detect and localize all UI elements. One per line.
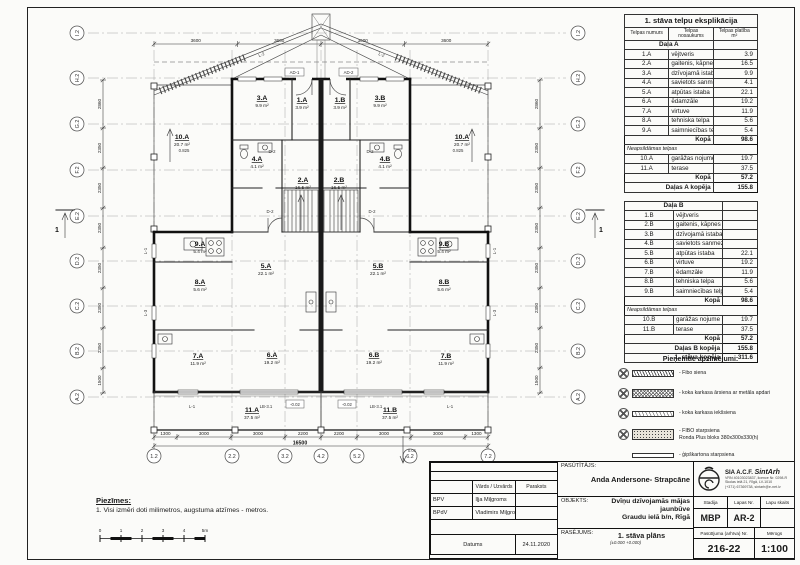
room-name: terase — [674, 325, 723, 335]
grid-bubble-label: 4.2 — [317, 454, 325, 460]
room-area: 19.2 — [713, 97, 757, 107]
table-row: 2.B gaitenis, kāpnes — [625, 220, 758, 230]
room-name: dzīvojamā istaba — [674, 230, 723, 240]
col-header-name: Telpas nosaukums — [669, 28, 713, 41]
room-area: 5.6 — [723, 277, 758, 287]
svg-text:3.9 m²: 3.9 m² — [295, 105, 309, 110]
explication-table-a: 1. stāva telpu eksplikācija Telpas numur… — [624, 14, 758, 193]
axis-circle-icon — [618, 429, 629, 440]
room-label: 3.B9.9 m² — [373, 95, 387, 108]
slope-value: 0.01 — [408, 448, 417, 453]
terrace-tag-l1: L-1 — [189, 404, 196, 409]
scale-label: Mērogs — [755, 528, 794, 539]
dimension-value: 2350 — [97, 222, 102, 233]
drawing-section: RASĒJUMS: 1. stāva plāns (±0.000 +0.000) — [558, 529, 694, 559]
svg-text:10.A: 10.A — [455, 134, 469, 141]
svg-text:16.5 m²: 16.5 m² — [295, 185, 311, 190]
lapu-label: Lapu skaits — [761, 497, 794, 509]
table-row: 8.A tehniska telpa 5.6 — [625, 116, 758, 126]
personnel-name: Iļja Miļgroms — [473, 494, 515, 507]
terrace-tag-lb31: LB-3.1 — [260, 404, 273, 409]
stadija-value: MBP — [694, 509, 728, 528]
total-b-value: 155.8 — [723, 344, 758, 354]
kopa-value: 98.6 — [713, 135, 757, 145]
kopa-label: Kopā — [625, 296, 723, 306]
dimension-value: 1300 — [471, 431, 482, 436]
table-row: 7.A virtuve 11.9 — [625, 107, 758, 117]
room-number: 5.B — [625, 249, 674, 259]
legend-label: - ģipškartona starpsiena — [679, 452, 734, 459]
room-name: virtuve — [669, 107, 713, 117]
personnel-signature — [515, 494, 557, 507]
room-name: dzīvojamā istaba — [669, 69, 713, 79]
room-label: 6.A19.2 m² — [264, 352, 280, 365]
personnel-name: Vladimirs Miļgroms — [473, 507, 515, 520]
room-area: 5.6 — [713, 116, 757, 126]
titleblock-middle: PASŪTĪTĀJS: Anda Andersone- Strapcāne OB… — [558, 462, 694, 559]
terrace-tag-lb31-r: LB-3.1 — [370, 404, 383, 409]
scale-bar: 012345m — [95, 526, 225, 546]
table-a-title: 1. stāva telpu eksplikācija — [625, 15, 758, 28]
room-name: savietots sanmezgls — [674, 239, 723, 249]
svg-text:1: 1 — [55, 227, 59, 234]
room-area: 5.4 — [723, 287, 758, 297]
grid-bubble-label: 7.2 — [484, 454, 492, 460]
dimension-value: 2350 — [97, 302, 102, 313]
legend-title: Pieņemtie apzīmējumi: — [618, 356, 783, 363]
total-b-label: Daļas B kopēja — [625, 344, 723, 354]
room-name: ēdamzāle — [669, 97, 713, 107]
scalebar-label: 2 — [141, 528, 144, 533]
svg-text:1: 1 — [599, 227, 603, 234]
room-label: 10.A20.7 m² — [174, 134, 190, 147]
dimension-value: 2350 — [534, 182, 539, 193]
room-label: 11.A37.5 m² — [244, 407, 260, 420]
roof-tag-l2-left: L-2 — [258, 51, 266, 58]
room-name: atpūtas istaba — [669, 88, 713, 98]
svg-text:5.4 m²: 5.4 m² — [437, 249, 451, 254]
svg-text:22.1 m²: 22.1 m² — [370, 271, 386, 276]
svg-text:7.B: 7.B — [441, 353, 452, 360]
table-row: 1.B vējtveris — [625, 211, 758, 221]
table-row: 11.A terase 37.5 — [625, 164, 758, 174]
dimension-value: 2200 — [334, 431, 345, 436]
grid-bubble-label: D.2 — [576, 257, 582, 265]
window-tag-l1: L-1 — [143, 247, 148, 254]
grid-bubble-label: D.2 — [75, 257, 81, 265]
legend: Pieņemtie apzīmējumi: - Fibo siena - kok… — [618, 356, 783, 470]
svg-text:6.A: 6.A — [267, 352, 278, 359]
dimension-value: 1300 — [160, 431, 171, 436]
lapas-value: AR-2 — [728, 509, 761, 528]
room-area: 22.1 — [713, 88, 757, 98]
carport-elev-left: 0.825 — [179, 148, 190, 153]
grid-bubble-label: H.2 — [576, 74, 582, 82]
svg-text:3.B: 3.B — [375, 95, 386, 102]
room-number: 5.A — [625, 88, 669, 98]
legend-label: - koka karkasa iekšsiena — [679, 410, 736, 417]
dimension-value: 2200 — [298, 431, 309, 436]
room-number: 11.A — [625, 164, 669, 174]
room-area — [723, 230, 758, 240]
room-label: 1.B3.9 m² — [333, 97, 347, 110]
svg-text:7.A: 7.A — [193, 353, 204, 360]
drawing-label: RASĒJUMS: — [561, 530, 593, 536]
firm-name: SintArh — [755, 469, 780, 476]
drawing-note: (±0.000 +0.000) — [561, 540, 690, 545]
room-area: 22.1 — [723, 249, 758, 259]
dimension-total: 16500 — [293, 441, 308, 447]
svg-text:11.9 m²: 11.9 m² — [190, 361, 206, 366]
grid-bubble-label: B.2 — [576, 347, 582, 355]
scalebar-label: 4 — [183, 528, 186, 533]
room-name: tehniska telpa — [674, 277, 723, 287]
dimension-value: 3600 — [191, 38, 202, 43]
table-row: 4.A savietots sanmezgls 4.1 — [625, 78, 758, 88]
kopa2-value: 57.2 — [713, 173, 757, 183]
room-area — [723, 211, 758, 221]
grid-bubble-label: G.2 — [576, 120, 582, 129]
scalebar-label: 5m — [202, 528, 209, 533]
svg-text:19.2 m²: 19.2 m² — [264, 360, 280, 365]
svg-text:9.A: 9.A — [195, 241, 206, 248]
svg-text:22.1 m²: 22.1 m² — [258, 271, 274, 276]
svg-text:1.A: 1.A — [297, 97, 308, 104]
room-name: saimniecības telpa — [674, 287, 723, 297]
room-number: 10.B — [625, 315, 674, 325]
unheated-label: Neapsildāmas telpas — [625, 145, 758, 155]
dimension-value: 3000 — [433, 431, 444, 436]
dimension-value: 2350 — [97, 182, 102, 193]
grid-bubble-label: 1.2 — [150, 454, 158, 460]
title-block: Vārds / Uzvārds Paraksts BPV Iļja Miļgro… — [429, 461, 794, 559]
table-row: 11.B terase 37.5 — [625, 325, 758, 335]
dimension-value: 3000 — [253, 431, 264, 436]
table-row: 4.B savietots sanmezgls — [625, 239, 758, 249]
client-name: Anda Andersone- Strapcāne — [561, 475, 690, 484]
dimension-value: 3000 — [199, 431, 210, 436]
firm-phone: (+371) 67369738, sintarh@e-net.lv — [725, 485, 787, 489]
svg-text:5.6 m²: 5.6 m² — [437, 287, 451, 292]
room-number: 9.B — [625, 287, 674, 297]
room-number: 4.B — [625, 239, 674, 249]
table-row: 5.A atpūtas istaba 22.1 — [625, 88, 758, 98]
floor-plan: I.2I.2H.2H.2G.2G.2F.2F.2E.2E.2D.2D.2C.2C… — [0, 0, 616, 470]
table-row: 1.A vējtveris 3.9 — [625, 50, 758, 60]
table-row: 6.B virtuve 19.2 — [625, 258, 758, 268]
grid-bubble-label: C.2 — [75, 302, 81, 310]
legend-item: - ģipškartona starpsiena — [618, 450, 783, 461]
room-name: saimniecības telpa — [669, 126, 713, 136]
room-name: vējtveris — [674, 211, 723, 221]
dimension-value: 2350 — [97, 262, 102, 273]
svg-text:20.7 m²: 20.7 m² — [454, 142, 470, 147]
personnel-header-sign: Paraksts — [515, 481, 557, 494]
room-label: 11.B37.5 m² — [382, 407, 398, 420]
room-name: garāžas nojume — [669, 154, 713, 164]
grid-bubble-label: 5.2 — [353, 454, 361, 460]
room-number: 3.A — [625, 69, 669, 79]
svg-text:4.1 m²: 4.1 m² — [250, 164, 264, 169]
terrace-elev: -0.02 — [290, 402, 300, 407]
firm-logo-icon — [696, 466, 722, 492]
legend-item: - koka karkasa ārsiena ar metāla apdari — [618, 388, 783, 399]
kopa-label: Kopā — [625, 334, 723, 344]
client-section: PASŪTĪTĀJS: Anda Andersone- Strapcāne — [558, 462, 694, 497]
notes-title: Piezīmes: — [96, 496, 426, 505]
room-label: 8.B5.6 m² — [437, 279, 451, 292]
svg-text:20.7 m²: 20.7 m² — [174, 142, 190, 147]
svg-text:37.5 m²: 37.5 m² — [244, 415, 260, 420]
table-a-rows: 1.A vējtveris 3.9 2.A gaitenis, kāpnes 1… — [625, 50, 758, 136]
object-label: OBJEKTS: — [561, 498, 588, 504]
room-name: vējtveris — [669, 50, 713, 60]
dimension-value: 1500 — [97, 375, 102, 386]
grid-bubble-label: F.2 — [576, 166, 582, 173]
legend-label: - Fibo siena — [679, 370, 706, 377]
object-section: OBJEKTS: Dvīņu dzīvojamās mājas jaunbūve… — [558, 497, 694, 529]
explication-table-b: Daļa B 1.B vējtveris 2.B gaitenis, kāpne… — [624, 201, 758, 364]
scalebar-label: 1 — [120, 528, 123, 533]
grid-bubble-label: I.2 — [75, 30, 81, 36]
dimension-value: 2350 — [97, 142, 102, 153]
table-row: 2.A gaitenis, kāpnes 16.5 — [625, 59, 758, 69]
svg-text:11.B: 11.B — [383, 407, 397, 414]
svg-text:5.A: 5.A — [261, 263, 272, 270]
door-tag-d2: D-2 — [369, 209, 377, 214]
grid-bubble-label: 3.2 — [281, 454, 289, 460]
firm-logo-box: SIA A.C.F. SintArh VRN 40103023837, lice… — [694, 462, 794, 497]
svg-text:9.9 m²: 9.9 m² — [373, 103, 387, 108]
notes-item: 1. Visi izmēri doti milimetros, augstuma… — [96, 507, 426, 514]
roof-tag-l2-right: L-2 — [378, 51, 386, 58]
dimension-value: 2350 — [534, 302, 539, 313]
kopa-label: Kopā — [625, 135, 714, 145]
svg-text:9.B: 9.B — [439, 241, 450, 248]
roof-tag-ad2: AD-2 — [344, 70, 354, 75]
dimension-value: 2350 — [534, 262, 539, 273]
svg-text:3.A: 3.A — [257, 95, 268, 102]
wall-symbol — [632, 411, 674, 417]
room-name: atpūtas istaba — [674, 249, 723, 259]
personnel-role: BPV — [431, 494, 473, 507]
axis-circle-icon — [618, 408, 629, 419]
svg-text:8.B: 8.B — [439, 279, 450, 286]
table-row: 3.A dzīvojamā istaba 9.9 — [625, 69, 758, 79]
svg-text:11.9 m²: 11.9 m² — [438, 361, 454, 366]
svg-text:5.6 m²: 5.6 m² — [193, 287, 207, 292]
table-row: 10.A garāžas nojume 19.7 — [625, 154, 758, 164]
room-number: 8.A — [625, 116, 669, 126]
table-row: 8.B tehniska telpa 5.6 — [625, 277, 758, 287]
svg-text:37.5 m²: 37.5 m² — [382, 415, 398, 420]
wall-symbol — [632, 389, 674, 398]
section-mark-right: 1 — [586, 210, 604, 238]
notes: Piezīmes: 1. Visi izmēri doti milimetros… — [96, 496, 426, 514]
grid-bubble-label: 6.2 — [406, 454, 414, 460]
grid-bubble-label: B.2 — [75, 347, 81, 355]
legend-item: - koka karkasa iekšsiena — [618, 408, 783, 419]
table-row: 9.A saimniecības telpa 5.4 — [625, 126, 758, 136]
room-name: ēdamzāle — [674, 268, 723, 278]
room-label: 1.A3.9 m² — [295, 97, 309, 110]
svg-text:9.9 m²: 9.9 m² — [255, 103, 269, 108]
svg-text:6.B: 6.B — [369, 352, 380, 359]
table-row: 9.B saimniecības telpa 5.4 — [625, 287, 758, 297]
room-area: 5.4 — [713, 126, 757, 136]
dimension-value: 3000 — [379, 431, 390, 436]
svg-text:5.4 m²: 5.4 m² — [193, 249, 207, 254]
room-number: 2.B — [625, 220, 674, 230]
table-a-unheated-rows: 10.A garāžas nojume 19.7 11.A terase 37.… — [625, 154, 758, 173]
room-number: 6.B — [625, 258, 674, 268]
table-row: 5.B atpūtas istaba 22.1 — [625, 249, 758, 259]
table-row: 3.B dzīvojamā istaba — [625, 230, 758, 240]
room-label: 10.A20.7 m² — [454, 134, 470, 147]
svg-text:19.2 m²: 19.2 m² — [366, 360, 382, 365]
dimension-value: 2350 — [97, 342, 102, 353]
dimension-value: 2350 — [534, 142, 539, 153]
room-label: 3.A9.9 m² — [255, 95, 269, 108]
wall-symbol — [632, 453, 674, 458]
room-number: 8.B — [625, 277, 674, 287]
personnel-header-name: Vārds / Uzvārds — [473, 481, 515, 494]
unheated-label: Neapsildāmas telpas — [625, 306, 758, 316]
room-label: 6.B19.2 m² — [366, 352, 382, 365]
grid-bubble-label: G.2 — [75, 120, 81, 129]
axis-circle-icon — [618, 368, 629, 379]
kopa-value: 98.6 — [723, 296, 758, 306]
room-area: 11.9 — [723, 268, 758, 278]
section-a-label: Daļa A — [625, 40, 714, 50]
section-b-label: Daļa B — [625, 201, 723, 211]
client-label: PASŪTĪTĀJS: — [561, 463, 690, 469]
dimension-value: 2860 — [534, 98, 539, 109]
object-line2: Graudu ielā b/n, Rīgā — [561, 514, 690, 522]
window-tag-l3-r: L-3 — [492, 309, 497, 316]
grid-bubble-label: 2.2 — [228, 454, 236, 460]
party-wall — [319, 79, 324, 392]
drawing-sheet: I.2I.2H.2H.2G.2G.2F.2F.2E.2E.2D.2D.2C.2C… — [0, 0, 800, 565]
lapas-label: Lapas Nr. — [728, 497, 761, 509]
svg-text:16.5 m²: 16.5 m² — [331, 185, 347, 190]
table-b-rows: 1.B vējtveris 2.B gaitenis, kāpnes 3.B d… — [625, 211, 758, 297]
room-name: terase — [669, 164, 713, 174]
dimension-value: 2350 — [534, 342, 539, 353]
room-label: 2.A16.5 m² — [295, 177, 311, 190]
legend-label: - koka karkasa ārsiena ar metāla apdari — [679, 390, 770, 397]
room-number: 11.B — [625, 325, 674, 335]
room-area: 19.2 — [723, 258, 758, 268]
grid-bubble-label: E.2 — [75, 212, 81, 220]
datums-label: Datums — [431, 535, 516, 555]
room-area: 37.5 — [723, 325, 758, 335]
room-number: 6.A — [625, 97, 669, 107]
svg-text:11.A: 11.A — [245, 407, 259, 414]
room-area: 37.5 — [713, 164, 757, 174]
room-label: 8.A5.6 m² — [193, 279, 207, 292]
grid-bubble-label: C.2 — [576, 302, 582, 310]
total-a-label: Daļas A kopēja — [625, 183, 714, 193]
grid-bubble-label: A.2 — [576, 393, 582, 401]
room-label: 5.A22.1 m² — [258, 263, 274, 276]
terrace-tag-l1-r: L-1 — [447, 404, 454, 409]
room-label: 7.A11.9 m² — [190, 353, 206, 366]
scalebar-label: 0 — [99, 528, 102, 533]
room-number: 10.A — [625, 154, 669, 164]
table-row: 6.A ēdamzāle 19.2 — [625, 97, 758, 107]
legend-item: - Fibo siena — [618, 368, 783, 379]
room-area: 4.1 — [713, 78, 757, 88]
grid-bubble-label: I.2 — [576, 30, 582, 36]
room-label: 9.A5.4 m² — [193, 241, 207, 254]
dimension-value: 2860 — [97, 98, 102, 109]
table-row: 7.B ēdamzāle 11.9 — [625, 268, 758, 278]
room-name: gaitenis, kāpnes — [669, 59, 713, 69]
carport-elev-right: 0.825 — [453, 148, 464, 153]
kopa-label: Kopā — [625, 173, 714, 183]
room-name: garāžas nojume — [674, 315, 723, 325]
personnel-role: BPdV — [431, 507, 473, 520]
svg-text:3.9 m²: 3.9 m² — [333, 105, 347, 110]
svg-text:10.A: 10.A — [175, 134, 189, 141]
room-name: savietots sanmezgls — [669, 78, 713, 88]
terraces: L-1 LB-3.1 -0.02 LB-3.1 L-1 -0.02 — [151, 392, 491, 433]
svg-text:2.A: 2.A — [298, 177, 309, 184]
scale-value: 1:100 — [755, 539, 794, 559]
grid-bubble-label: E.2 — [576, 212, 582, 220]
col-header-area: Telpas platība m² — [713, 28, 757, 41]
table-b-unheated-rows: 10.B garāžas nojume 19.7 11.B terase 37.… — [625, 315, 758, 334]
room-number: 9.A — [625, 126, 669, 136]
room-area: 16.5 — [713, 59, 757, 69]
grid-bubble-label: H.2 — [75, 74, 81, 82]
order-number-value: 216-22 — [694, 539, 755, 559]
order-number-label: Pasūtījuma (arhīva) Nr. — [694, 528, 755, 539]
titleblock-right: SIA A.C.F. SintArh VRN 40103023837, lice… — [694, 462, 794, 559]
room-area: 3.9 — [713, 50, 757, 60]
dimension-value: 3600 — [441, 38, 452, 43]
exterior-walls — [154, 79, 488, 392]
datums-value: 24.11.2020 — [515, 535, 557, 555]
svg-text:2.B: 2.B — [334, 177, 345, 184]
room-label: 9.B5.4 m² — [437, 241, 451, 254]
room-area — [723, 220, 758, 230]
room-name: gaitenis, kāpnes — [674, 220, 723, 230]
room-area: 11.9 — [713, 107, 757, 117]
roof-tag-ad1: AD-1 — [290, 70, 300, 75]
terrace-elev-r: -0.02 — [342, 402, 352, 407]
svg-text:4.A: 4.A — [252, 156, 263, 163]
room-name: virtuve — [674, 258, 723, 268]
room-number: 1.A — [625, 50, 669, 60]
room-number: 3.B — [625, 230, 674, 240]
window-tag-l1-r: L-1 — [492, 247, 497, 254]
col-header-num: Telpas numurs — [625, 28, 669, 41]
room-number: 2.A — [625, 59, 669, 69]
grid-bubble-label: F.2 — [75, 166, 81, 173]
room-number: 7.B — [625, 268, 674, 278]
lapu-value — [761, 509, 794, 528]
grid-axes: I.2I.2H.2H.2G.2G.2F.2F.2E.2E.2D.2D.2C.2C… — [70, 26, 585, 463]
legend-label: - FIBO starpsiena Ronda Plus bloks 380x3… — [679, 428, 758, 441]
room-number: 4.A — [625, 78, 669, 88]
room-label: 2.B16.5 m² — [331, 177, 347, 190]
room-area: 19.7 — [723, 315, 758, 325]
legend-item: - FIBO starpsiena Ronda Plus bloks 380x3… — [618, 428, 783, 441]
dimension-value: 1500 — [534, 375, 539, 386]
axis-circle-icon — [618, 388, 629, 399]
